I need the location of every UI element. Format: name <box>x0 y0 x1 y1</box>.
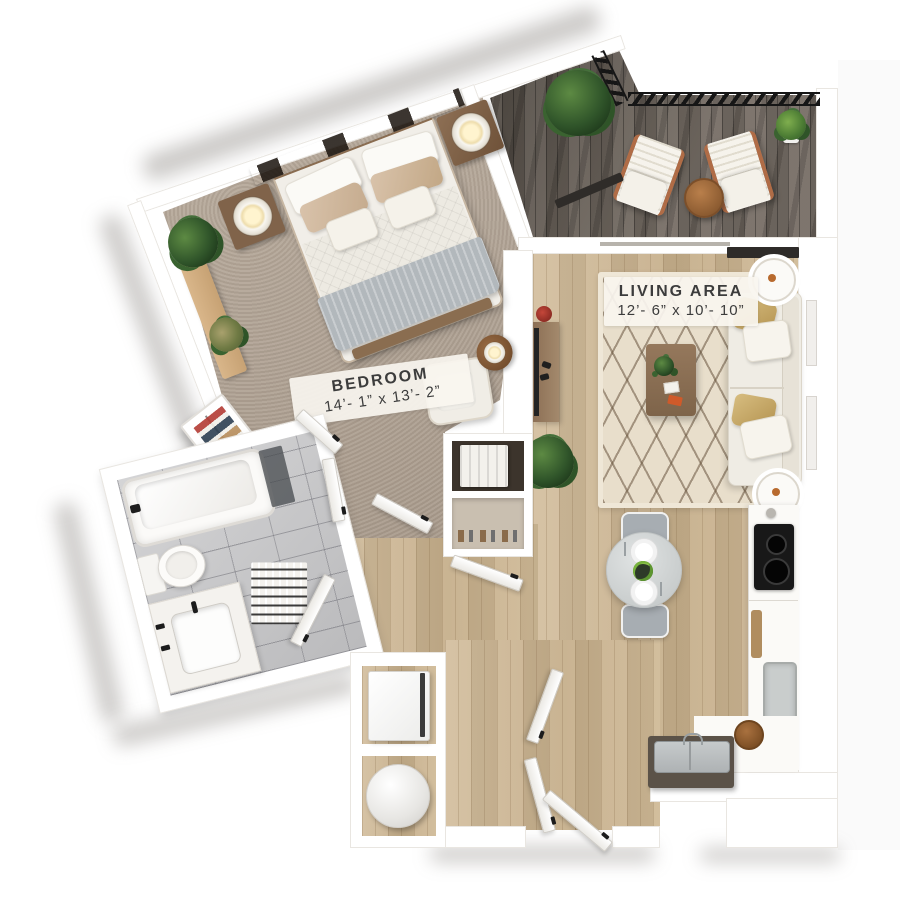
wall-bottom-right-step <box>726 798 838 848</box>
shadow-bathroom <box>53 500 125 724</box>
transom-window <box>727 247 799 258</box>
cutlery-top <box>624 542 626 556</box>
wall-balcony-right <box>816 88 838 240</box>
page-right-tint <box>838 60 900 850</box>
tv-plant-red <box>536 306 552 322</box>
fruit-bowl <box>633 561 653 581</box>
balcony-plant-small <box>776 110 806 140</box>
side-table-bottom-candle <box>772 488 780 496</box>
counter-seam-1 <box>748 600 798 601</box>
bath-mat <box>251 562 307 624</box>
washer-door-seam <box>420 673 425 737</box>
living-area-label: LIVING AREA 12’- 6” x 10’- 10” <box>604 277 758 326</box>
storage-items <box>458 530 518 542</box>
shadow-entry-bottom <box>430 846 655 862</box>
coffee-table-plant <box>654 356 674 376</box>
side-table-top-candle <box>768 274 776 282</box>
burner-large <box>763 558 790 585</box>
floor-plan: BEDROOM 14’- 1” x 13’- 2” LIVING AREA 12… <box>0 0 900 900</box>
shadow-kitchen-bottom <box>700 848 840 862</box>
dining-chair-bottom <box>621 604 669 638</box>
cutlery-bottom <box>660 582 662 596</box>
window-right-2 <box>806 396 817 470</box>
wall-right-exterior <box>798 237 838 789</box>
bistro-table <box>684 178 724 218</box>
water-heater <box>366 764 430 828</box>
wall-entry-bottom-right <box>612 826 660 848</box>
living-area-label-name: LIVING AREA <box>614 282 748 302</box>
coffee-table <box>646 344 696 416</box>
kitchen-faucet-item <box>766 508 776 518</box>
window-right-1 <box>806 300 817 366</box>
sofa-seat-divider <box>730 387 784 389</box>
burner-small <box>766 534 787 555</box>
basin-sink <box>763 662 797 724</box>
tv-panel <box>534 328 539 416</box>
balcony-glass-track <box>600 242 730 246</box>
island-sink <box>654 741 730 773</box>
balcony-railing <box>628 92 820 106</box>
island-sink-divider <box>689 742 691 770</box>
plate-bottom <box>630 578 658 606</box>
wood-bowl <box>734 720 764 750</box>
bedroom-plant-large <box>161 210 226 275</box>
living-area-label-dimensions: 12’- 6” x 10’- 10” <box>614 302 748 321</box>
island-faucet <box>683 733 703 745</box>
balcony-plant-large <box>545 70 611 136</box>
cutting-board <box>751 610 762 658</box>
coffee-table-book <box>663 381 679 394</box>
linen-stack <box>460 445 508 487</box>
